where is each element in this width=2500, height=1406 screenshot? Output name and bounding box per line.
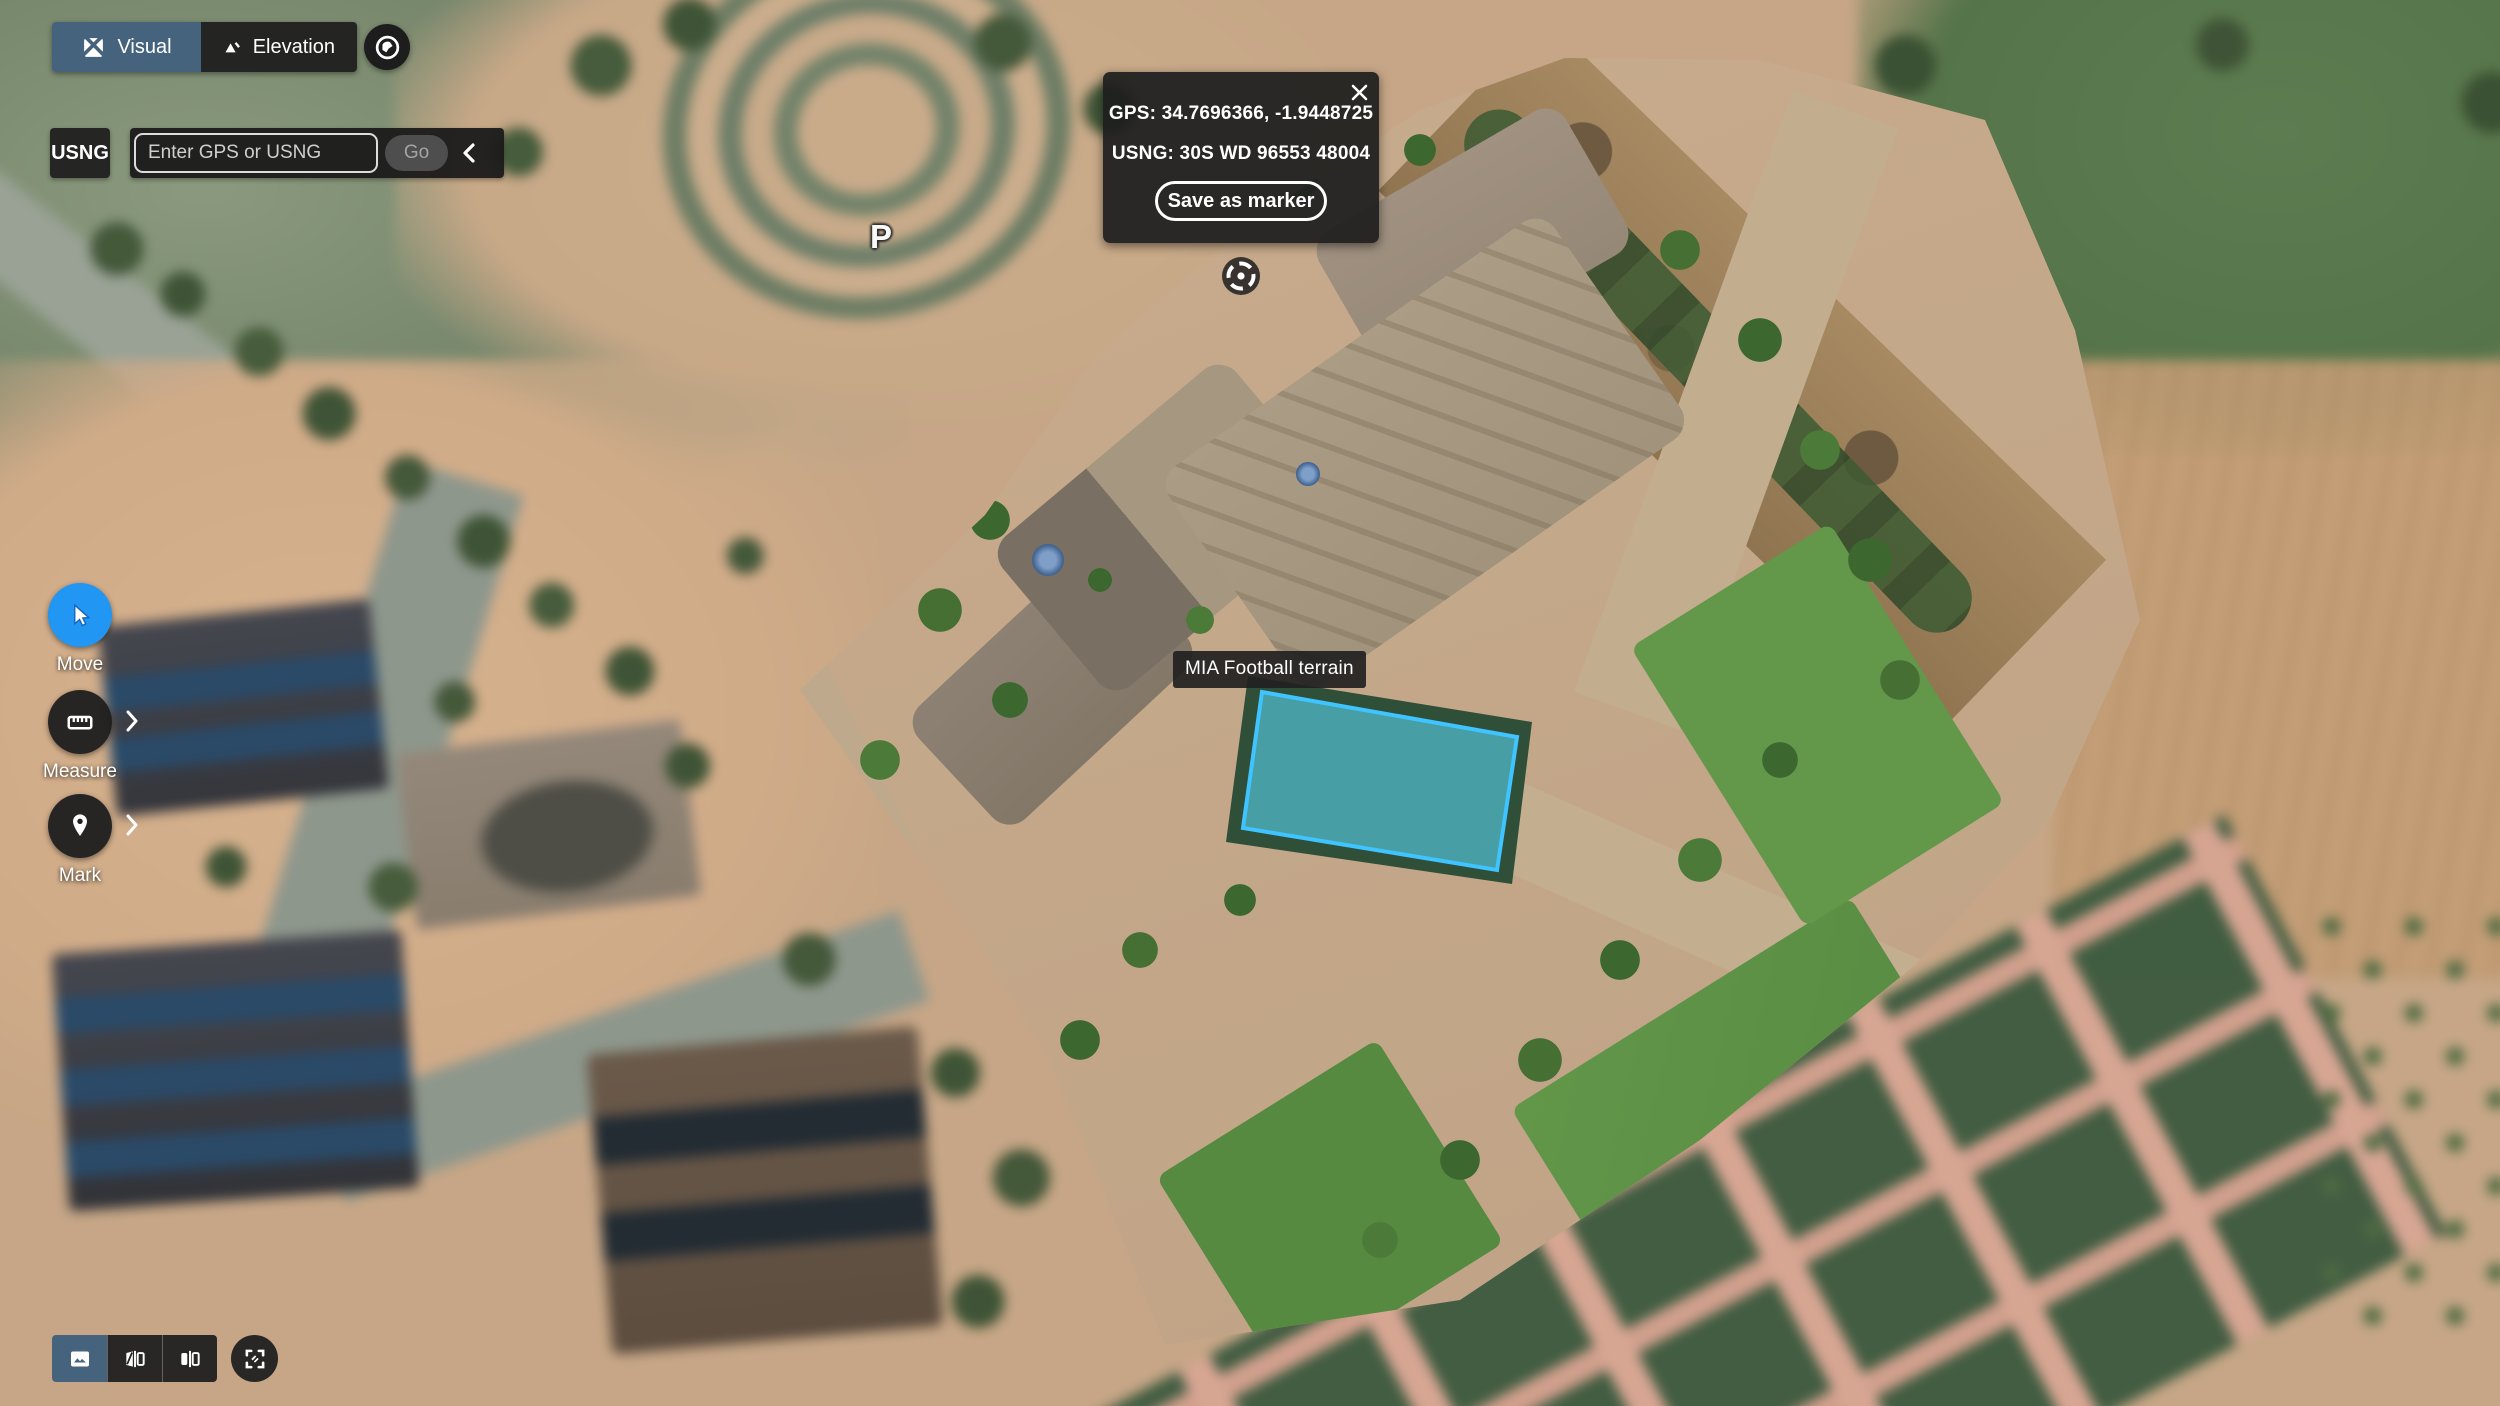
coordinate-search-input[interactable] [134, 133, 378, 173]
mark-tool-label: Mark [16, 865, 144, 887]
split-view-panels-icon [177, 1346, 203, 1372]
chevron-right-icon [124, 812, 140, 838]
gps-coordinates-text: GPS: 34.7696366, -1.9448725 [1103, 103, 1379, 125]
layer-toggle: Visual Elevation [52, 22, 357, 72]
move-tool-button[interactable] [48, 583, 112, 647]
globe-icon [374, 34, 401, 61]
measure-tool-button[interactable] [48, 690, 112, 754]
go-button[interactable]: Go [385, 135, 448, 171]
collapse-search-button[interactable] [460, 141, 478, 165]
single-view-button[interactable] [52, 1335, 107, 1382]
chevron-left-icon [460, 141, 478, 165]
center-focus-button[interactable] [231, 1335, 278, 1382]
side-by-side-button[interactable] [162, 1335, 217, 1382]
marker-popup: GPS: 34.7696366, -1.9448725 USNG: 30S WD… [1103, 72, 1379, 243]
cursor-icon [66, 601, 94, 629]
usng-coordinates-text: USNG: 30S WD 96553 48004 [1103, 143, 1379, 165]
marker-center-dot [1237, 272, 1244, 279]
visual-layer-button[interactable]: Visual [52, 22, 201, 72]
parking-marker: P [870, 218, 892, 256]
measure-tool-label: Measure [16, 761, 144, 783]
tool-move: Move [16, 583, 144, 676]
elevation-label: Elevation [253, 36, 335, 59]
ruler-icon [65, 707, 95, 737]
field-annotation-label[interactable]: MIA Football terrain [1173, 651, 1366, 688]
usng-system-label: USNG [50, 128, 110, 178]
center-focus-icon [242, 1346, 268, 1372]
elevation-layer-button[interactable]: Elevation [201, 22, 357, 72]
visual-label: Visual [117, 36, 171, 59]
visual-layers-icon [81, 35, 106, 60]
view-mode-toolbar [52, 1335, 278, 1382]
mark-tool-button[interactable] [48, 794, 112, 858]
split-view-swipe-icon [122, 1346, 148, 1372]
elevation-mountain-icon [223, 35, 242, 59]
coordinate-search-bar: Go [130, 128, 504, 178]
chevron-right-icon [124, 708, 140, 734]
save-as-marker-button[interactable]: Save as marker [1155, 181, 1327, 221]
measure-expand-button[interactable] [124, 708, 140, 739]
pin-icon [66, 812, 94, 840]
image-icon [68, 1347, 92, 1371]
clicked-location-marker[interactable] [1219, 254, 1263, 298]
close-icon [1350, 83, 1369, 102]
popup-close-button[interactable] [1347, 80, 1371, 104]
move-tool-label: Move [16, 654, 144, 676]
compare-swipe-button[interactable] [107, 1335, 162, 1382]
globe-basemap-button[interactable] [364, 24, 410, 70]
mark-expand-button[interactable] [124, 812, 140, 843]
